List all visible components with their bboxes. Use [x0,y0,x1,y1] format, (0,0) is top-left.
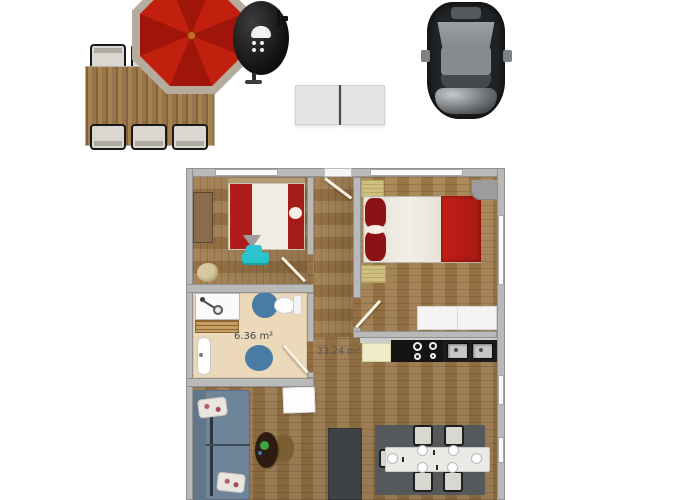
entrance-door-opening [324,168,352,177]
car-windshield [435,22,497,48]
burner-icon [414,353,421,360]
patio-chair [172,124,208,150]
car-top-view [427,2,505,119]
plate [417,445,428,456]
bath-mat [195,320,239,333]
folding-table-left [295,85,339,125]
wardrobe [193,192,213,243]
kitchen-cabinet [362,343,391,362]
bedside-mat [361,265,386,283]
window-right-bedroom [498,215,504,285]
bed-right-red-blanket [441,196,481,262]
wall-left [186,168,193,500]
living-area-label: 33.24 m² [317,346,360,357]
plate [471,453,482,464]
car-sunroof [451,7,481,19]
sofa-pillow [197,396,228,418]
toilet-bowl [274,297,295,314]
kitchen-island [328,428,362,500]
window-right-kitchen [498,375,504,405]
plate [448,445,459,456]
bedside-mat [361,180,384,197]
floor-hallway [314,177,353,337]
dresser-divider [457,307,458,329]
chair-backrest [176,141,204,146]
folding-table-right [341,85,385,125]
car-roof [441,46,491,76]
burner-icon [429,342,437,350]
dining-chair [413,425,433,446]
corner-desk [471,180,497,200]
grill-vent-dot [260,41,264,45]
floorplan-render-image: 6.36 m² 33.24 m² [0,0,700,500]
pouf [276,434,294,462]
plate [447,462,458,473]
bed-right-sheet [387,197,441,262]
wall-bathroom-bottom [186,378,314,387]
wall-hall-right [353,177,361,298]
dining-chair [443,471,463,492]
cutlery-icon [402,457,404,462]
teal-ottoman [242,252,269,265]
umbrella-pole [187,31,196,40]
floorplan: 6.36 m² 33.24 m² [186,168,505,500]
tv-table [283,386,316,413]
chair-backrest [135,141,163,146]
decor-dot [258,451,262,455]
beanbag [197,263,218,282]
grill-leg [245,80,262,84]
wall-hall-left [307,177,314,255]
cutlery-icon [433,450,435,455]
patio-chair [131,124,167,150]
grill-vent-dot [252,41,256,45]
sofa-pillow [216,472,246,494]
chair-backrest [94,141,122,146]
wall-bathroom-right [307,293,314,342]
sofa-cushion-gap [206,444,250,446]
wall-stub [307,372,314,378]
dining-chair [444,425,464,446]
burner-icon [430,353,436,359]
bed-right-pillow [365,198,386,228]
car-hood [435,88,497,114]
car-mirror-right [503,50,512,62]
cutlery-icon [436,465,438,470]
faucet-icon [479,348,483,352]
bathroom-area-label: 6.36 m² [234,331,273,342]
grill-vent-icon [251,26,271,38]
bed-right-pillow-accent [366,225,385,234]
faucet-icon [454,348,458,352]
plate [417,462,428,473]
window-top-right [370,169,463,176]
grill-vent-dot [252,48,256,52]
wall-bedroom-right-bottom [353,331,497,338]
patio-chair [90,124,126,150]
coffee-table [255,432,278,468]
car-mirror-left [421,50,430,62]
grill-handle [281,16,288,21]
car-rear-window [441,75,491,89]
toilet-tank [293,295,302,315]
window-top-left [215,169,278,176]
window-right-dining [498,437,504,463]
wall-bedroom-left-bottom [186,284,314,293]
dining-chair [413,471,433,492]
folding-table-hinge [339,85,341,125]
chair-backrest [94,48,122,53]
bath-rug [245,345,273,371]
sink-faucet-icon [199,353,203,357]
shower-drain-icon [213,305,223,315]
grill-handle [277,10,280,26]
plate [387,453,398,464]
patio-umbrella [132,0,250,94]
kettle-grill [233,1,289,75]
bed-right-pillow [365,231,386,261]
plant-icon [260,441,269,450]
burner-icon [413,342,422,351]
bed-left-pillow [289,207,302,219]
grill-vent-dot [260,48,264,52]
